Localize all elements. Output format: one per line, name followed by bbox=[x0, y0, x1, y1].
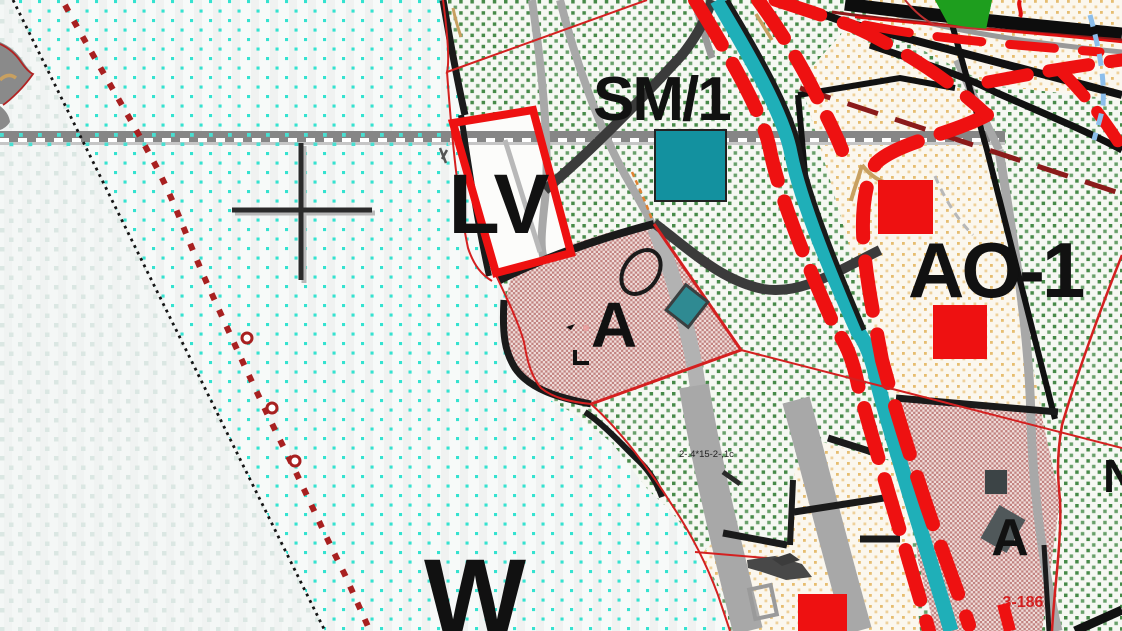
svg-text:AO-1: AO-1 bbox=[908, 226, 1084, 314]
svg-text:LV: LV bbox=[448, 157, 549, 251]
svg-text:A: A bbox=[591, 289, 637, 361]
svg-text:A: A bbox=[991, 509, 1029, 567]
svg-text:SM/1: SM/1 bbox=[593, 65, 730, 134]
svg-text:2-.4*15-2-,1c: 2-.4*15-2-,1c bbox=[679, 449, 734, 460]
svg-text:W: W bbox=[424, 536, 526, 631]
svg-text:N: N bbox=[1103, 450, 1122, 502]
